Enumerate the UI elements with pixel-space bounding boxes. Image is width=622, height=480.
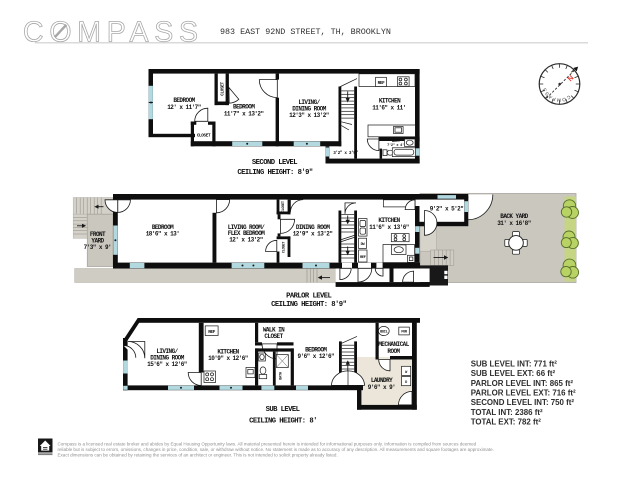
svg-text:reliable but is subject to err: reliable but is subject to errors, omiss… xyxy=(58,447,494,452)
svg-text:CLOSET: CLOSET xyxy=(283,241,287,253)
svg-text:31' x 16'8": 31' x 16'8" xyxy=(497,220,531,227)
svg-text:ROOM: ROOM xyxy=(387,348,400,355)
svg-text:11'6" x 13'6": 11'6" x 13'6" xyxy=(369,224,409,231)
svg-text:CLOSET: CLOSET xyxy=(221,82,226,96)
svg-text:983 EAST 92ND STREET, TH, BROO: 983 EAST 92ND STREET, TH, BROOKLYN xyxy=(220,27,391,37)
svg-text:REF: REF xyxy=(360,256,366,260)
svg-text:3'2" x 3'9": 3'2" x 3'9" xyxy=(333,151,358,156)
svg-text:CEILING HEIGHT: 8': CEILING HEIGHT: 8' xyxy=(249,418,317,426)
svg-text:PARLOR LEVEL EXT: 716 ft²: PARLOR LEVEL EXT: 716 ft² xyxy=(471,389,576,398)
svg-text:BEDROOM: BEDROOM xyxy=(173,97,195,104)
svg-text:11'7" x 13'2": 11'7" x 13'2" xyxy=(224,111,264,118)
svg-text:CEILING HEIGHT: 8'9": CEILING HEIGHT: 8'9" xyxy=(237,169,313,177)
svg-text:SUB LEVEL EXT: 66 ft²: SUB LEVEL EXT: 66 ft² xyxy=(471,369,556,378)
svg-text:TOTAL INT: 2386 ft²: TOTAL INT: 2386 ft² xyxy=(471,408,543,417)
svg-text:9'6" x 12'6": 9'6" x 12'6" xyxy=(297,353,334,360)
svg-text:CLOSET: CLOSET xyxy=(197,133,211,138)
svg-text:BACK YARD: BACK YARD xyxy=(500,213,528,220)
svg-text:KITCHEN: KITCHEN xyxy=(379,98,401,105)
svg-text:Compass is a licensed real est: Compass is a licensed real estate broker… xyxy=(58,441,477,446)
svg-text:18'6" x 13': 18'6" x 13' xyxy=(146,231,180,238)
svg-text:15'6" x 12'6": 15'6" x 12'6" xyxy=(147,361,187,368)
svg-text:BEDROOM: BEDROOM xyxy=(233,104,255,111)
svg-text:7'3" x 9': 7'3" x 9' xyxy=(84,244,111,251)
svg-text:CLOSET: CLOSET xyxy=(264,333,283,340)
svg-text:KITCHEN: KITCHEN xyxy=(378,217,400,224)
svg-text:BOIL: BOIL xyxy=(380,330,388,334)
svg-text:PARLOR LEVEL: PARLOR LEVEL xyxy=(286,292,331,300)
svg-text:SECOND LEVEL INT: 750 ft²: SECOND LEVEL INT: 750 ft² xyxy=(471,398,575,407)
svg-text:REF: REF xyxy=(378,81,385,86)
svg-text:SUB LEVEL: SUB LEVEL xyxy=(266,406,300,414)
svg-text:CLOSET: CLOSET xyxy=(282,200,286,212)
svg-text:7'2" x 4': 7'2" x 4' xyxy=(387,143,404,148)
svg-text:12' x 13'2": 12' x 13'2" xyxy=(229,237,263,244)
svg-text:12'9" x 13'2": 12'9" x 13'2" xyxy=(293,231,333,238)
svg-text:PARLOR LEVEL INT: 865 ft²: PARLOR LEVEL INT: 865 ft² xyxy=(471,379,574,388)
svg-text:12'3" x 13'2": 12'3" x 13'2" xyxy=(289,112,329,119)
svg-text:12' x 11'7": 12' x 11'7" xyxy=(167,104,201,111)
svg-text:9'6" x 9': 9'6" x 9' xyxy=(368,384,395,391)
svg-text:REF: REF xyxy=(208,330,215,335)
svg-text:C: C xyxy=(23,16,49,48)
svg-text:SUB LEVEL INT: 771 ft²: SUB LEVEL INT: 771 ft² xyxy=(471,359,558,368)
svg-text:OMPASS: OMPASS xyxy=(49,16,203,48)
svg-text:9'2" x 5'2": 9'2" x 5'2" xyxy=(430,205,464,212)
svg-text:10'9" x 12'6": 10'9" x 12'6" xyxy=(208,355,248,362)
svg-text:11'6" x 11': 11'6" x 11' xyxy=(372,105,406,112)
svg-text:BATH: BATH xyxy=(280,372,284,380)
svg-text:Exact dimensions can be obtain: Exact dimensions can be obtained by reta… xyxy=(58,453,338,458)
svg-text:CEILING HEIGHT: 8'9": CEILING HEIGHT: 8'9" xyxy=(271,301,347,309)
svg-text:SECOND LEVEL: SECOND LEVEL xyxy=(252,159,297,167)
svg-text:TOTAL EXT: 782 ft²: TOTAL EXT: 782 ft² xyxy=(471,418,542,427)
